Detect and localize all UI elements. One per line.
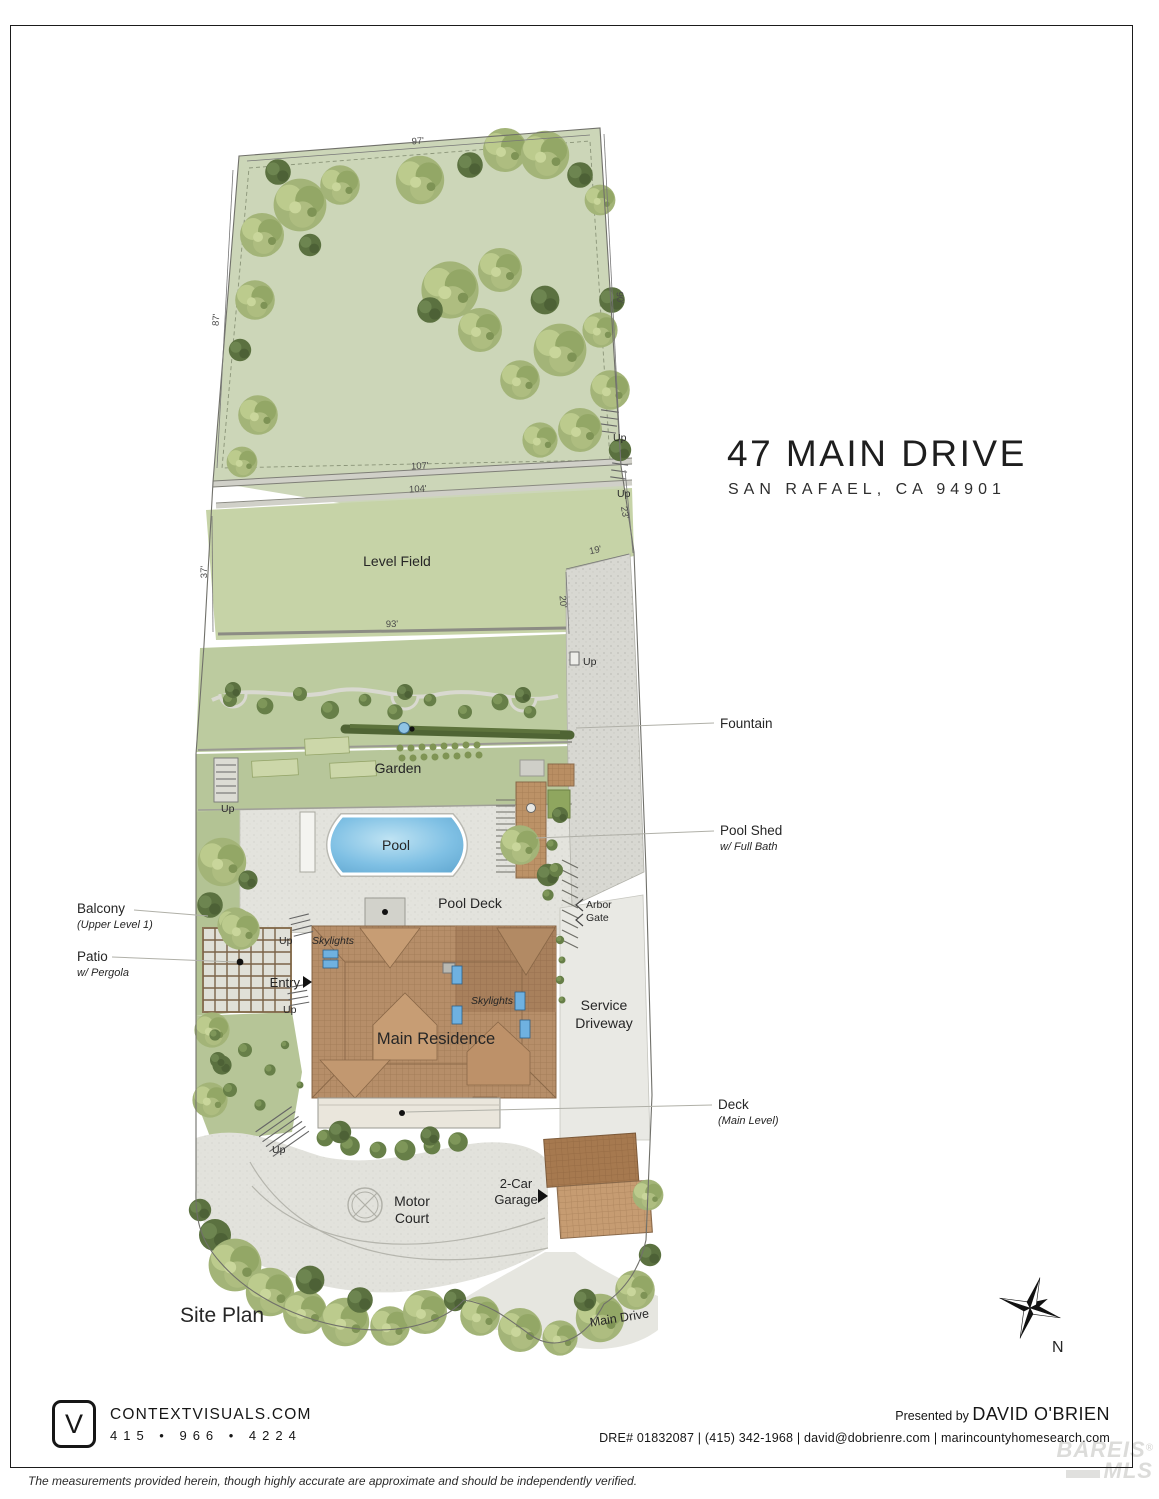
- equipment-pad: [365, 898, 405, 926]
- compass-north-label: N: [1052, 1339, 1064, 1356]
- dim-90: 90': [613, 291, 625, 304]
- site-plan-page: BAREIS® MLS: [0, 0, 1159, 1499]
- title-block: 47 MAIN DRIVE SAN RAFAEL, CA 94901: [727, 433, 1027, 499]
- label-garden: Garden: [375, 760, 422, 776]
- footer-left: V CONTEXTVISUALS.COM 415 • 966 • 4224: [52, 1400, 312, 1448]
- disclaimer-text: The measurements provided herein, though…: [28, 1474, 637, 1488]
- label-motor-2: Court: [395, 1210, 429, 1226]
- context-visuals-logo-icon: V: [52, 1400, 96, 1448]
- label-motor-1: Motor: [394, 1193, 430, 1209]
- label-up-6: Up: [283, 1004, 297, 1016]
- callout-pool-shed: Pool Shed: [720, 823, 782, 838]
- label-skylights-2: Skylights: [471, 995, 514, 1007]
- label-up-4: Up: [221, 803, 235, 815]
- label-up-2: Up: [617, 488, 631, 500]
- callout-balcony: Balcony: [77, 901, 125, 916]
- footer-company: CONTEXTVISUALS.COM: [110, 1406, 312, 1424]
- agent-name: DAVID O'BRIEN: [972, 1404, 1110, 1424]
- callout-deck: Deck: [718, 1097, 749, 1112]
- presented-by-label: Presented by: [895, 1409, 972, 1423]
- entry-arrow-icon: [303, 976, 312, 988]
- callout-pool-shed-sub: w/ Full Bath: [720, 841, 777, 853]
- dim-23: 23': [618, 506, 631, 520]
- label-up-7: Up: [272, 1144, 286, 1156]
- label-service-2: Driveway: [575, 1015, 633, 1031]
- label-garage-2: Garage: [494, 1192, 537, 1207]
- label-skylights-1: Skylights: [312, 935, 355, 947]
- dim-104: 104': [409, 484, 427, 496]
- footer-phone: 415 • 966 • 4224: [110, 1428, 312, 1443]
- dim-93: 93': [386, 619, 399, 630]
- dim-20: 20': [556, 595, 568, 608]
- callout-patio: Patio: [77, 949, 108, 964]
- callout-balcony-sub: (Upper Level 1): [77, 919, 153, 931]
- label-garage-1: 2-Car: [500, 1176, 533, 1191]
- footer-right: Presented by DAVID O'BRIEN DRE# 01832087…: [599, 1404, 1110, 1445]
- label-up-1: Up: [613, 432, 627, 444]
- label-level-field: Level Field: [363, 553, 431, 569]
- property-city: SAN RAFAEL, CA 94901: [728, 481, 1027, 499]
- callout-deck-sub: (Main Level): [718, 1115, 779, 1127]
- callout-patio-sub: w/ Pergola: [77, 967, 129, 979]
- callout-fountain: Fountain: [720, 716, 773, 731]
- agent-credentials: DRE# 01832087 | (415) 342-1968 | david@d…: [599, 1431, 1110, 1445]
- property-address: 47 MAIN DRIVE: [727, 433, 1027, 475]
- label-up-5: Up: [279, 935, 293, 947]
- label-arbor-2: Gate: [586, 912, 609, 924]
- label-pool-deck: Pool Deck: [438, 895, 503, 911]
- site-plan-illustration: 97' 87' 90' 107' 104' 37' 93' 23' 19' 20…: [0, 0, 1159, 1499]
- label-service-1: Service: [581, 997, 628, 1013]
- label-site-plan: Site Plan: [180, 1304, 264, 1327]
- main-residence-roof: [312, 926, 556, 1127]
- dim-87: 87': [211, 313, 223, 326]
- compass-rose-icon: [990, 1268, 1071, 1349]
- label-pool: Pool: [382, 837, 410, 853]
- dim-107: 107': [411, 461, 429, 473]
- label-entry: Entry: [270, 975, 301, 990]
- dim-37: 37': [199, 566, 210, 579]
- label-main-residence: Main Residence: [377, 1030, 495, 1048]
- label-up-3: Up: [583, 656, 597, 668]
- label-arbor-1: Arbor: [586, 899, 612, 911]
- pool-bench: [300, 812, 315, 872]
- dim-97: 97': [411, 136, 424, 148]
